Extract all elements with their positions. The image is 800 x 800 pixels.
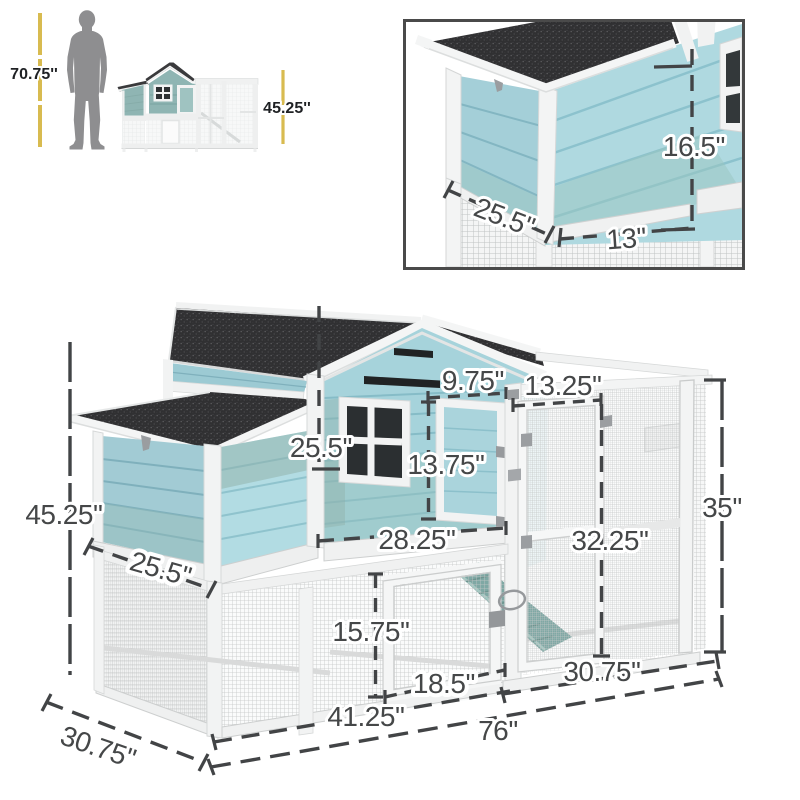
svg-text:13'': 13'' (605, 222, 647, 256)
svg-text:15.75'': 15.75'' (332, 616, 409, 647)
svg-text:76'': 76'' (478, 715, 518, 746)
svg-text:16.5'': 16.5'' (663, 131, 725, 162)
svg-text:35'': 35'' (702, 492, 742, 523)
svg-text:9.75'': 9.75'' (442, 365, 504, 396)
svg-text:13.75'': 13.75'' (407, 449, 484, 480)
svg-text:32.25'': 32.25'' (571, 525, 648, 556)
svg-text:28.25'': 28.25'' (378, 524, 455, 555)
svg-text:25.5'': 25.5'' (290, 432, 352, 463)
svg-text:70.75'': 70.75'' (10, 66, 58, 83)
svg-text:13.25'': 13.25'' (524, 370, 601, 401)
svg-text:41.25'': 41.25'' (327, 701, 404, 732)
svg-text:30.75'': 30.75'' (563, 656, 640, 687)
svg-text:45.25'': 45.25'' (25, 499, 102, 530)
svg-text:45.25'': 45.25'' (263, 100, 311, 117)
svg-text:18.5'': 18.5'' (413, 668, 475, 699)
